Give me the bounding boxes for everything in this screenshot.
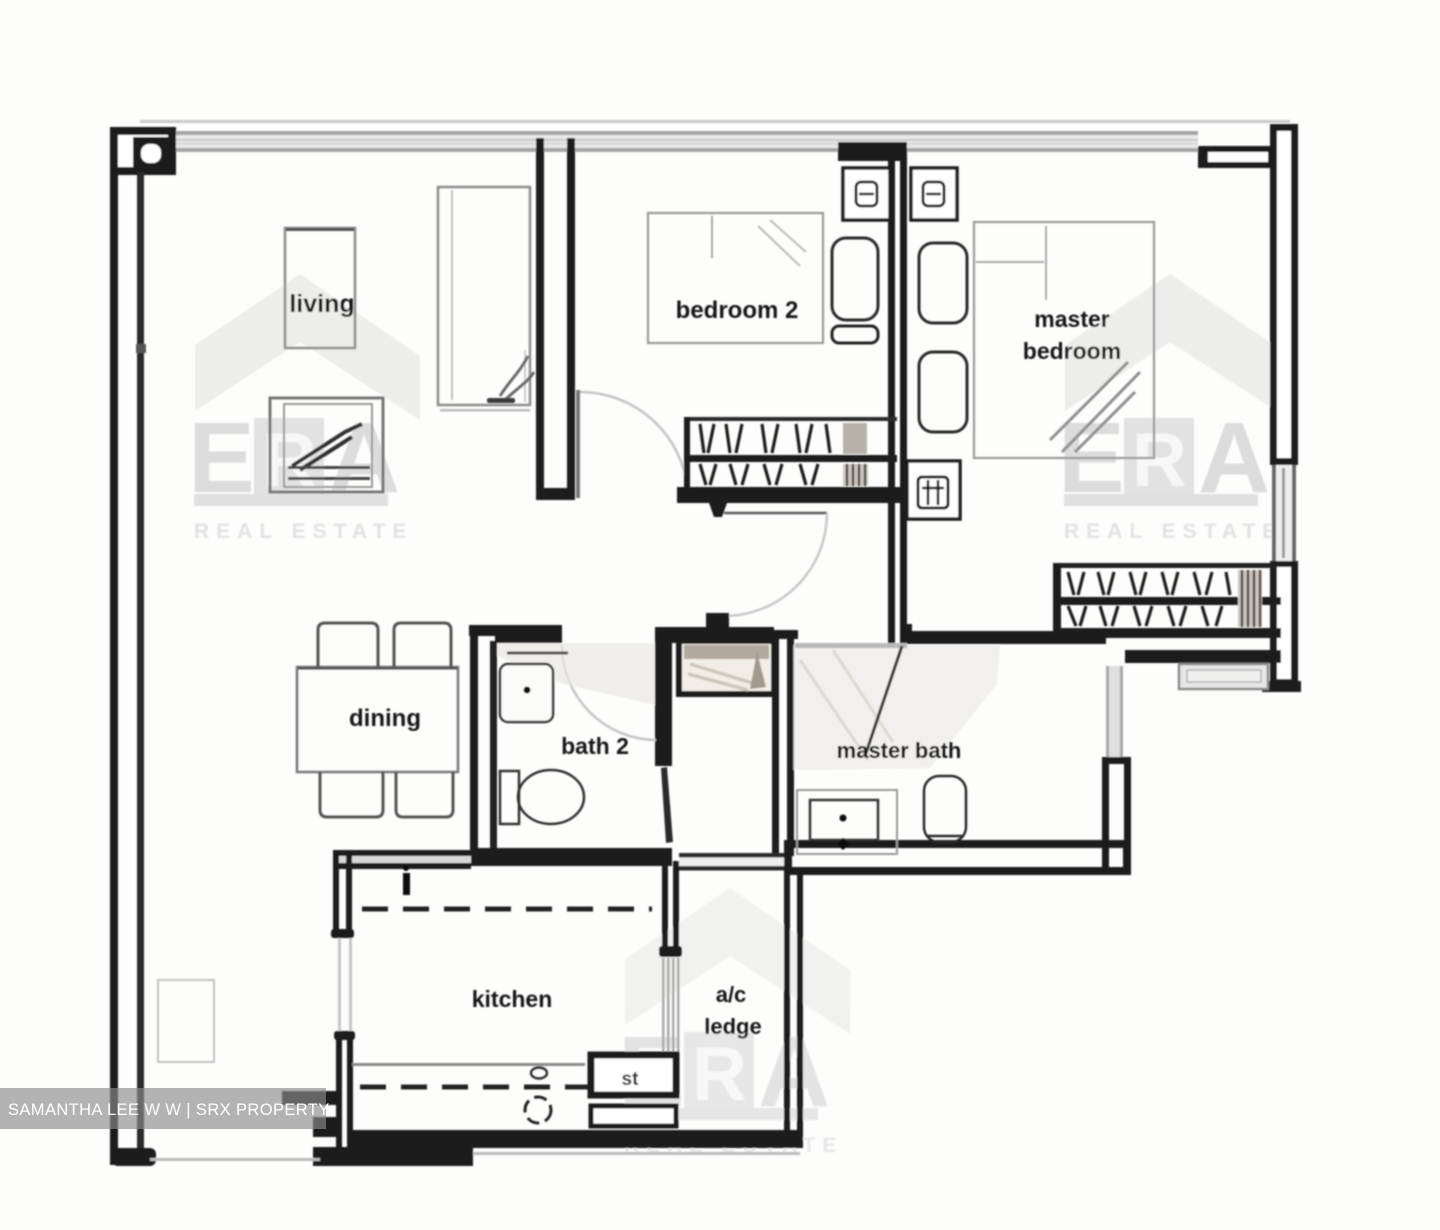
svg-text:living: living: [289, 290, 354, 318]
svg-text:master: master: [1034, 306, 1109, 332]
svg-text:kitchen: kitchen: [472, 986, 553, 1012]
svg-text:dining: dining: [349, 705, 421, 732]
svg-text:ledge: ledge: [704, 1014, 761, 1039]
svg-text:st: st: [622, 1069, 640, 1090]
svg-text:a/c: a/c: [716, 982, 747, 1007]
svg-text:master bath: master bath: [837, 738, 962, 763]
svg-text:bedroom: bedroom: [1023, 338, 1121, 364]
svg-text:SAMANTHA LEE W W | SRX PROPERT: SAMANTHA LEE W W | SRX PROPERTY: [8, 1101, 330, 1119]
svg-text:bedroom 2: bedroom 2: [676, 297, 799, 324]
svg-text:bath 2: bath 2: [561, 733, 629, 759]
